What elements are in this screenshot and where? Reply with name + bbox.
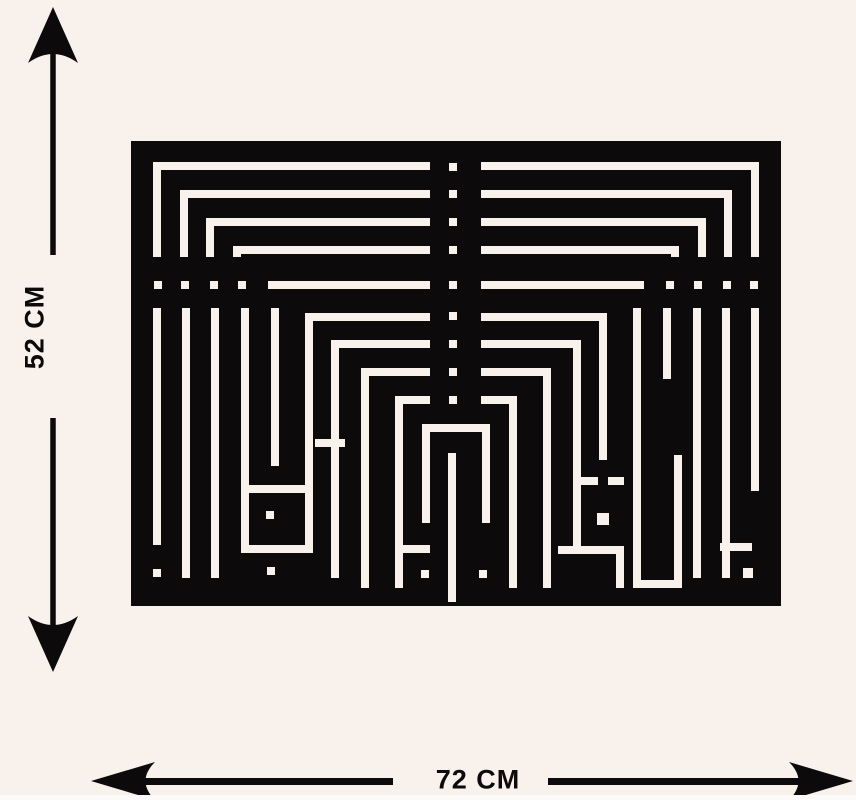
dimension-arrows [0,0,856,800]
width-dimension-label: 72 CM [436,765,521,796]
product-dimension-image: 52 CM 72 CM [0,0,856,800]
height-dimension-label: 52 CM [20,285,51,370]
image-bottom-edge [0,795,856,800]
